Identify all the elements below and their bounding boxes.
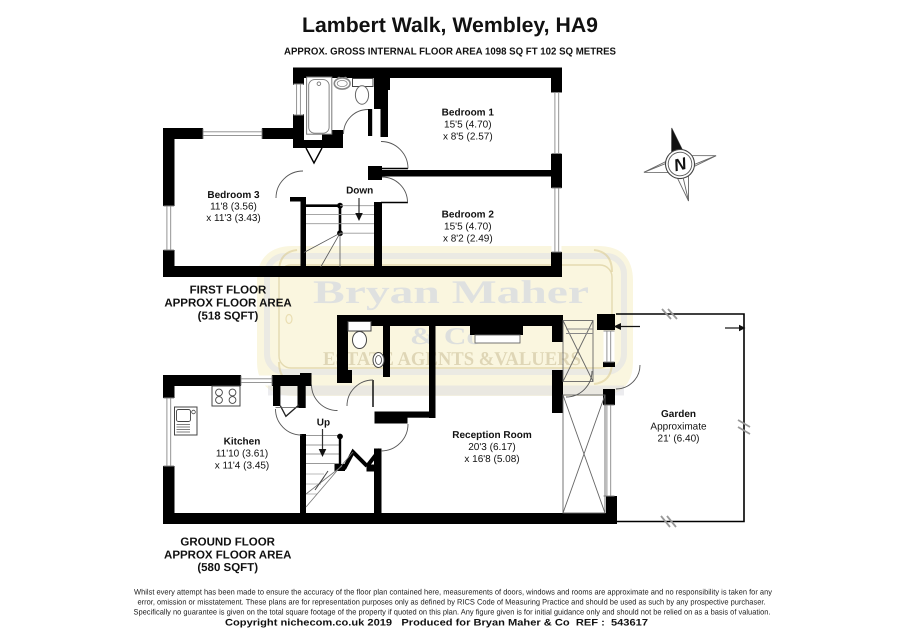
svg-text:APPROX FLOOR AREA: APPROX FLOOR AREA (164, 298, 291, 310)
svg-text:APPROX FLOOR AREA: APPROX FLOOR AREA (164, 550, 291, 562)
svg-text:Bedroom 2: Bedroom 2 (442, 210, 495, 221)
svg-text:Lambert Walk, Wembley, HA9: Lambert Walk, Wembley, HA9 (302, 14, 598, 37)
svg-text:x 11'3 (3.43): x 11'3 (3.43) (206, 213, 261, 224)
svg-text:Kitchen: Kitchen (224, 437, 261, 448)
svg-text:15'5 (4.70): 15'5 (4.70) (444, 222, 492, 233)
svg-text:Whilst every attempt has been: Whilst every attempt has been made to en… (134, 588, 772, 597)
svg-text:Approximate: Approximate (650, 422, 707, 433)
svg-text:Garden: Garden (661, 409, 696, 420)
svg-text:Up: Up (317, 418, 330, 429)
svg-text:ESTATE AGENTS &VALUERS: ESTATE AGENTS &VALUERS (323, 349, 581, 370)
svg-text:GROUND FLOOR: GROUND FLOOR (180, 537, 275, 549)
svg-text:Down: Down (346, 186, 373, 197)
svg-text:11'8 (3.56): 11'8 (3.56) (210, 202, 257, 213)
svg-text:x 16'8 (5.08): x 16'8 (5.08) (464, 454, 519, 465)
svg-text:Bryan Maher: Bryan Maher (313, 275, 589, 311)
svg-text:Bedroom 1: Bedroom 1 (442, 108, 495, 119)
svg-text:x 8'2 (2.49): x 8'2 (2.49) (443, 234, 493, 245)
svg-text:20'3 (6.17): 20'3 (6.17) (468, 442, 516, 453)
svg-text:(580 SQFT): (580 SQFT) (197, 562, 258, 574)
svg-text:11'10 (3.61): 11'10 (3.61) (216, 449, 268, 460)
svg-text:15'5 (4.70): 15'5 (4.70) (444, 120, 492, 131)
svg-text:Bedroom 3: Bedroom 3 (207, 190, 260, 201)
svg-text:x 11'4 (3.45): x 11'4 (3.45) (215, 461, 270, 472)
svg-text:error, omission or misstatemen: error, omission or misstatement. These p… (138, 598, 766, 607)
svg-text:APPROX. GROSS INTERNAL FLOOR A: APPROX. GROSS INTERNAL FLOOR AREA 1098 S… (284, 47, 616, 58)
svg-text:Reception Room: Reception Room (452, 430, 532, 441)
svg-text:Specifically no guarantee is g: Specifically no guarantee is given on th… (134, 608, 771, 617)
svg-text:FIRST FLOOR: FIRST FLOOR (190, 285, 267, 297)
svg-text:Copyright nichecom.co.uk 2019: Copyright nichecom.co.uk 2019 Produced f… (225, 618, 648, 629)
svg-text:21' (6.40): 21' (6.40) (658, 434, 700, 445)
svg-text:x 8'5 (2.57): x 8'5 (2.57) (443, 132, 493, 143)
svg-text:(518 SQFT): (518 SQFT) (198, 311, 259, 323)
